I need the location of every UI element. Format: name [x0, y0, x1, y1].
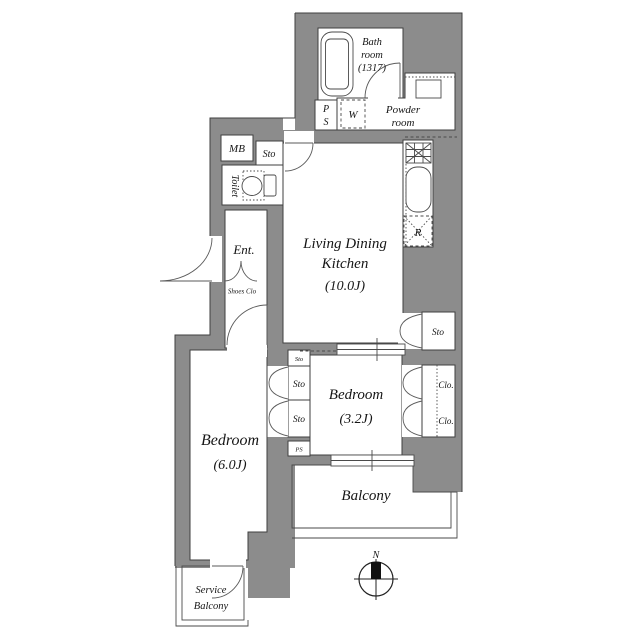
front-door-gap: [208, 236, 222, 282]
ldk-label-3: (10.0J): [325, 279, 365, 294]
balcony-label: Balcony: [341, 488, 390, 504]
floor-plan-image: Bath room (1317) Powder room P S W MB St…: [0, 0, 640, 640]
bedroom-large-label-1: Bedroom: [201, 432, 259, 449]
closet-bottom-label: Clo.: [438, 416, 453, 426]
stove-icon: [406, 143, 431, 163]
ldk-label-2: Kitchen: [321, 256, 369, 272]
washbasin-icon: [416, 80, 441, 98]
closet-top-label: Clo.: [438, 380, 453, 390]
storage-top-small-label: Sto: [295, 356, 304, 363]
service-balcony-label-2: Balcony: [194, 601, 229, 612]
entrance-label: Ent.: [232, 242, 254, 257]
shoes-closet-label: Shoes Clo: [228, 288, 257, 296]
pipe-shaft-p-label: P: [322, 104, 329, 115]
bath-label-2: room: [361, 50, 383, 61]
service-balcony-railing: [176, 566, 248, 626]
front-door: [160, 238, 212, 281]
floor-plan-svg: Bath room (1317) Powder room P S W MB St…: [0, 0, 640, 640]
powder-label-1: Powder: [385, 104, 421, 116]
compass: N: [354, 550, 398, 600]
refrigerator-label: R: [414, 227, 422, 239]
powder-label-2: room: [392, 117, 415, 129]
bathtub-inner: [326, 39, 349, 89]
storage-low-label: Sto: [293, 415, 305, 425]
wall-balcony-notch: [413, 450, 462, 492]
bedroom-small-label-2: (3.2J): [339, 412, 372, 427]
bedroom-large-room: [190, 350, 267, 560]
meter-box-label: MB: [228, 143, 245, 155]
closet-column: [422, 365, 455, 437]
toilet-label: Toilet: [229, 175, 240, 198]
bath-label-3: (1317): [358, 63, 386, 74]
storage-hall-label: Sto: [263, 149, 276, 160]
bedroom-small-room: [310, 355, 402, 455]
bedroom-small-label-1: Bedroom: [329, 387, 384, 403]
pipe-space-small-label: PS: [294, 447, 303, 454]
washer-label: W: [348, 109, 358, 121]
ldk-label-1: Living Dining: [302, 236, 387, 252]
kitchen-sink-icon: [406, 167, 431, 212]
bedroom-large-label-2: (6.0J): [213, 458, 246, 473]
storage-ldk-label: Sto: [432, 328, 444, 338]
ldk-door-gap: [284, 131, 314, 144]
pipe-shaft-s-label: S: [324, 117, 329, 128]
service-balcony-label-1: Service: [196, 585, 227, 596]
wall-bottom-step: [248, 528, 290, 598]
bath-door-gap: [368, 96, 398, 102]
bath-label-1: Bath: [362, 37, 382, 48]
storage-mid-label: Sto: [293, 380, 305, 390]
compass-needle: [371, 562, 381, 579]
bedroom-large-door-gap: [227, 344, 267, 357]
